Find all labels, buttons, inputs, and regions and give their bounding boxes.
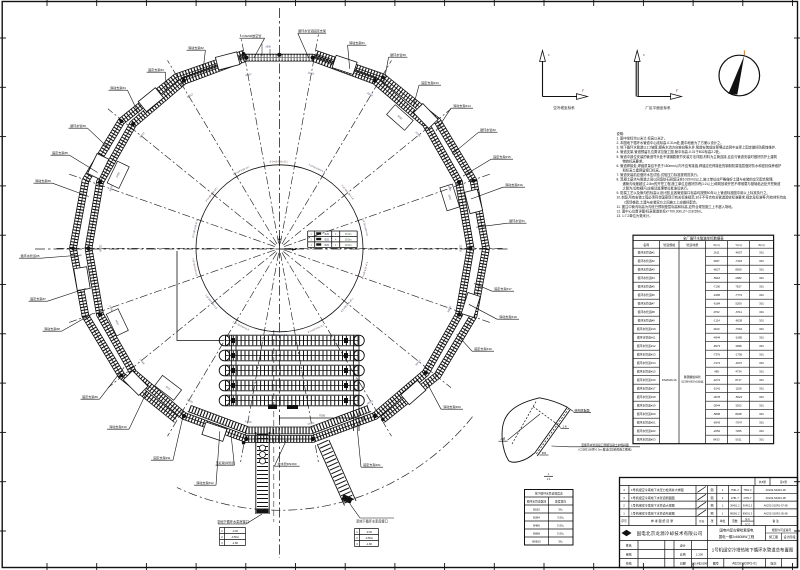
svg-text:施工图: 施工图 — [769, 534, 778, 539]
svg-text:301: 301 — [759, 285, 764, 289]
svg-text:循环水管道#22: 循环水管道#22 — [637, 429, 656, 433]
svg-text:2014年02月: 2014年02月 — [692, 562, 707, 566]
svg-text:7627: 7627 — [735, 285, 742, 289]
svg-text:301: 301 — [759, 251, 764, 255]
svg-text:和标高土建预留接口标高。: 和标高土建预留接口标高。 — [623, 167, 663, 172]
svg-text:国电一期2x660MW工程: 国电一期2x660MW工程 — [719, 534, 755, 539]
svg-text:共8张: 共8张 — [759, 480, 766, 484]
svg-text:7561.2: 7561.2 — [731, 488, 739, 492]
svg-text:结构底板面: 结构底板面 — [574, 408, 589, 413]
svg-text:1号机组空冷塔热地下循环水管道总布置图: 1号机组空冷塔热地下循环水管道总布置图 — [712, 547, 794, 554]
svg-text:2781.7: 2781.7 — [731, 496, 739, 500]
svg-text:2982: 2982 — [735, 276, 742, 280]
svg-text:管道规格: 管道规格 — [663, 242, 675, 247]
svg-text:DN200放空管: DN200放空管 — [243, 33, 262, 38]
svg-text:-4637: -4637 — [735, 361, 743, 365]
svg-text:9. 防腐工艺以及管沟的标高以设计图,且各管道接口标高均按照: 9. 防腐工艺以及管沟的标高以设计图,且各管道接口标高均按照50年以上管道标准图… — [617, 190, 770, 195]
svg-text:滑动支架#8: 滑动支架#8 — [44, 326, 60, 331]
svg-text:8559: 8559 — [735, 268, 742, 272]
svg-text:《现场核验,土建与安装双方之间施工上应做好配合。: 《现场核验,土建与安装双方之间施工上应做好配合。 — [623, 199, 700, 204]
svg-text:-7376: -7376 — [713, 353, 721, 357]
svg-text:A6232-S02R1-01: A6232-S02R1-01 — [732, 562, 757, 566]
svg-text:循环水管#1: 循环水管#1 — [509, 218, 525, 223]
svg-text:循环水管道#6: 循环水管道#6 — [638, 293, 656, 297]
svg-text:7. 管道安装前应做好水压试验,试验压力标准按规范执行。: 7. 管道安装前应做好水压试验,试验压力标准按规范执行。 — [617, 172, 701, 177]
svg-text:30451.2: 30451.2 — [743, 504, 753, 508]
svg-text:7561.2: 7561.2 — [744, 488, 752, 492]
svg-text:循环水管道#18: 循环水管道#18 — [637, 395, 656, 399]
svg-text:1. 图中坐标均以米计,标高以米计。: 1. 图中坐标均以米计,标高以米计。 — [617, 136, 668, 141]
svg-text:循环水管#9: 循环水管#9 — [390, 52, 406, 57]
svg-text:X(m): X(m) — [713, 243, 720, 247]
svg-text:7.1F 50.8 ΔH=1.8: 7.1F 50.8 ΔH=1.8 — [269, 160, 288, 163]
svg-text:滑动支架#16: 滑动支架#16 — [505, 182, 523, 187]
svg-text:审核: 审核 — [626, 552, 632, 557]
svg-text:-6028: -6028 — [735, 319, 743, 323]
svg-text:-4944: -4944 — [713, 336, 721, 340]
svg-text:301: 301 — [759, 310, 764, 314]
svg-text:7266: 7266 — [735, 429, 742, 433]
svg-text:滑动支架#18: 滑动支架#18 — [499, 314, 517, 319]
svg-text:301: 301 — [759, 293, 764, 297]
svg-text:4702: 4702 — [713, 310, 720, 314]
svg-text:-5916: -5916 — [713, 276, 721, 280]
svg-text:301: 301 — [759, 361, 764, 365]
svg-text:±0.0m: ±0.0m — [345, 233, 352, 236]
svg-text:循环水管道#9: 循环水管道#9 — [638, 319, 656, 323]
svg-text:301: 301 — [759, 429, 764, 433]
svg-text:固定支架#13: 固定支架#13 — [421, 80, 439, 85]
svg-text:滑动支架#1: 滑动支架#1 — [349, 40, 365, 45]
svg-text:-0.30: -0.30 — [366, 530, 372, 534]
svg-text:-7047: -7047 — [735, 421, 743, 425]
svg-text:301: 301 — [759, 404, 764, 408]
svg-text:Y(m): Y(m) — [735, 243, 742, 247]
svg-text:1号机组空冷塔地下水管道布置图: 1号机组空冷塔地下水管道布置图 — [631, 511, 675, 516]
svg-text:301: 301 — [759, 378, 764, 382]
svg-text:-6711: -6711 — [735, 310, 742, 314]
svg-text:循环水管道#21: 循环水管道#21 — [637, 421, 656, 425]
svg-text:8948: 8948 — [735, 412, 742, 416]
svg-text:1号机组空冷塔地下水压力检测井大样图: 1号机组空冷塔地下水压力检测井大样图 — [631, 487, 684, 492]
svg-text:301: 301 — [759, 268, 764, 272]
svg-text:1:200: 1:200 — [696, 553, 703, 557]
svg-text:循环水管道#10: 循环水管道#10 — [637, 327, 656, 331]
svg-text:固定支架#7: 固定支架#7 — [30, 296, 46, 301]
svg-text:循环水管道#20: 循环水管道#20 — [637, 412, 656, 416]
svg-text:3. 地下循环水管道以1:2坡度,顺各水流方向坡向集水井,管: 3. 地下循环水管道以1:2坡度,顺各水流方向坡向集水井,管道安装前应预埋过滤网… — [617, 145, 776, 150]
svg-text:5. 管道中部位安装的管道弯头处不锈钢膨胀节安装方法详图,材: 5. 管道中部位安装的管道弯头处不锈钢膨胀节安装方法详图,材料为主管连接,且应与… — [617, 154, 778, 159]
svg-text:循环水管道#1: 循环水管道#1 — [638, 251, 656, 255]
svg-text:循环水管道#16: 循环水管道#16 — [637, 378, 656, 382]
svg-text:至循环水管道接口预留混凝土护坦斜面: 至循环水管道接口预留混凝土护坦斜面 — [581, 443, 629, 447]
svg-text:固定支架#5: 固定支架#5 — [52, 150, 68, 155]
svg-text:A6232-S02R1-08: A6232-S02R1-08 — [766, 496, 787, 500]
svg-text:循环水管道#3: 循环水管道#3 — [638, 268, 656, 272]
svg-text:循环水管道#14: 循环水管道#14 — [637, 361, 656, 365]
svg-text:B4B6: B4B6 — [533, 523, 540, 527]
svg-text:301: 301 — [759, 438, 764, 442]
svg-text:-2252: -2252 — [713, 429, 721, 433]
svg-text:89091.2: 89091.2 — [730, 512, 740, 516]
svg-text:A6232-S02R1-05-08: A6232-S02R1-05-08 — [764, 512, 788, 516]
svg-text:489: 489 — [714, 370, 719, 374]
svg-text:Φ25: Φ25 — [324, 244, 329, 247]
svg-text:-1685: -1685 — [735, 336, 743, 340]
svg-text:循环水管道#5: 循环水管道#5 — [638, 285, 656, 289]
svg-text:循环水管道固定支架: 循环水管道固定支架 — [298, 28, 326, 33]
svg-text:7000: 7000 — [319, 414, 326, 418]
svg-text:至虹吸井管道: 至虹吸井管道 — [216, 460, 235, 465]
svg-text:备 注: 备 注 — [773, 519, 780, 523]
svg-text:循环水管道#5: 循环水管道#5 — [21, 253, 40, 258]
svg-text:循环水管道#15: 循环水管道#15 — [637, 370, 656, 374]
svg-text:B1B2: B1B2 — [533, 507, 540, 511]
svg-text:滑动支架#10: 滑动支架#10 — [109, 424, 127, 429]
svg-text:国电内蒙古察哈素煤电: 国电内蒙古察哈素煤电 — [720, 528, 755, 533]
svg-text:循环水管道#2: 循环水管道#2 — [638, 259, 656, 263]
svg-text:校核: 校核 — [626, 561, 632, 566]
svg-text:10.本图,所有安装工程必须符合国家现行有关标准规范,对于不: 10.本图,所有安装工程必须符合国家现行有关标准规范,对于不符合有关管道验收标准… — [617, 195, 787, 200]
svg-text:8. 混凝土基坑与管道之间以回填砂石回填压实1015/m3以: 8. 混凝土基坑与管道之间以回填砂石回填压实1015/m3以上,施工单位应严格做… — [617, 177, 774, 182]
svg-text:5.5‰: 5.5‰ — [557, 523, 564, 527]
svg-text:固定支架#19: 固定支架#19 — [474, 346, 492, 351]
svg-text:循环水管道#12: 循环水管道#12 — [637, 344, 656, 348]
svg-text:循环水管道#23: 循环水管道#23 — [637, 438, 656, 442]
svg-text:之管沟,如有疑问,应报请监理单位批准后执行。: 之管沟,如有疑问,应报请监理单位批准后执行。 — [623, 186, 691, 191]
svg-text:张: 张 — [711, 519, 714, 523]
svg-text:序号: 序号 — [621, 519, 627, 523]
svg-text:国电北京龙源冷却技术有限公司: 国电北京龙源冷却技术有限公司 — [637, 530, 703, 537]
svg-text:第1张: 第1张 — [780, 480, 787, 484]
svg-text:21500: 21500 — [459, 245, 462, 252]
svg-text:Q235B-8820x16防腐: Q235B-8820x16防腐 — [681, 380, 704, 384]
svg-text:1611: 1611 — [713, 251, 719, 255]
svg-text:1108: 1108 — [735, 387, 741, 391]
svg-text:管道材质: 管道材质 — [686, 242, 698, 247]
svg-text:地下循环水管道坡度表: 地下循环水管道坡度表 — [535, 492, 563, 496]
svg-text:301: 301 — [759, 276, 764, 280]
svg-text:-5141: -5141 — [713, 387, 721, 391]
svg-text:循环水管道#17: 循环水管道#17 — [637, 387, 656, 391]
svg-text:物的标高要求。: 物的标高要求。 — [623, 158, 646, 163]
svg-text:尺寸: 尺寸 — [745, 522, 750, 526]
svg-text:301: 301 — [759, 319, 764, 323]
svg-text:页数: 页数 — [732, 519, 738, 523]
svg-text:至地下循环水泵房接口: 至地下循环水泵房接口 — [356, 519, 388, 524]
svg-text:滑动支架#2: 滑动支架#2 — [188, 45, 204, 50]
svg-text:排水管DN300: 排水管DN300 — [278, 461, 297, 466]
svg-text:滑动支架#20: 滑动支架#20 — [443, 404, 461, 409]
svg-text:-6184: -6184 — [713, 302, 721, 306]
svg-text:301: 301 — [759, 336, 764, 340]
svg-text:B6B8: B6B8 — [533, 531, 540, 535]
svg-text:301: 301 — [759, 395, 764, 399]
svg-text:30451.2: 30451.2 — [730, 504, 740, 508]
svg-text:循环水管道#4: 循环水管道#4 — [638, 276, 656, 280]
svg-text:301: 301 — [759, 259, 764, 263]
svg-text:±0.0m: ±0.0m — [345, 244, 352, 247]
svg-text:A6232-S02R1-09: A6232-S02R1-09 — [766, 488, 787, 492]
svg-text:-6973: -6973 — [713, 344, 721, 348]
svg-text:5.5‰: 5.5‰ — [557, 531, 564, 535]
svg-text:DN2020x16: DN2020x16 — [662, 378, 677, 382]
svg-text:版次: 版次 — [770, 561, 776, 566]
svg-text:-5808: -5808 — [713, 412, 721, 416]
svg-text:固定支架#15: 固定支架#15 — [493, 154, 511, 159]
svg-text:2. 本图地下循环水管道中心线标高-0.31m处,图中地面为: 2. 本图地下循环水管道中心线标高-0.31m处,图中地面为了方便以设计之。 — [617, 140, 724, 145]
svg-text:至地下循环水泵房接口: 至地下循环水泵房接口 — [217, 519, 249, 524]
svg-text:-3078: -3078 — [713, 395, 721, 399]
svg-text:-1114: -1114 — [713, 319, 720, 323]
svg-text:-7100: -7100 — [713, 285, 721, 289]
svg-text:坡度坡向: 坡度坡向 — [555, 499, 566, 503]
svg-text:固定支架#17: 固定支架#17 — [494, 286, 512, 291]
svg-text:姓名: 姓名 — [626, 543, 632, 548]
svg-text:-6627: -6627 — [713, 268, 721, 272]
svg-text:滑动支架#12: 滑动支架#12 — [196, 480, 214, 485]
svg-text:11. 图注中管沟标高为沟底已预制垫层标高和标高,应符合规范: 11. 图注中管沟标高为沟底已预制垫层标高和标高,应符合规范施工上不超入场地。 — [617, 204, 735, 209]
svg-text:-7474: -7474 — [713, 361, 721, 365]
svg-text:-0.50m: -0.50m — [231, 535, 239, 539]
svg-text:-0.30: -0.30 — [232, 529, 238, 533]
svg-text:301: 301 — [759, 421, 764, 425]
svg-text:5011: 5011 — [735, 438, 741, 442]
svg-text:≥600: ≥600 — [266, 46, 272, 49]
svg-text:循环水管道#13: 循环水管道#13 — [637, 353, 656, 357]
svg-text:1:8: 1:8 — [562, 425, 567, 429]
svg-text:301: 301 — [759, 344, 764, 348]
svg-text:-5624: -5624 — [735, 395, 743, 399]
svg-text:1:2: 1:2 — [547, 477, 551, 481]
svg-text:301: 301 — [759, 302, 764, 306]
svg-text:固定支架#21: 固定支架#21 — [363, 462, 381, 467]
svg-text:全厂循环水管道坐标数据表: 全厂循环水管道坐标数据表 — [683, 235, 724, 240]
svg-text:12. 图中心位置详图/标高管道坐标x=700.30m,Z=: 12. 图中心位置详图/标高管道坐标x=700.30m,Z=-218.55m。 — [617, 208, 705, 213]
svg-text:滑动支架#14: 滑动支架#14 — [453, 103, 471, 108]
svg-text:3202: 3202 — [735, 404, 742, 408]
svg-text:日期: 日期 — [680, 561, 686, 566]
svg-text:6. 管道焊接处,焊缝质量应不低于180mm以内不应有接缝,: 6. 管道焊接处,焊缝质量应不低于180mm以内不应有接缝,焊缝应在焊接处的钢制… — [617, 163, 783, 168]
svg-text:说明:: 说明: — [617, 131, 625, 136]
svg-text:A机: A机 — [500, 436, 505, 441]
svg-text:设计: 设计 — [680, 543, 686, 548]
svg-text:301: 301 — [759, 370, 764, 374]
svg-text:13. 1:7.2单位为毫米计。: 13. 1:7.2单位为毫米计。 — [617, 213, 653, 218]
svg-text:张号: 张号 — [745, 517, 750, 521]
svg-text:-1.80: -1.80 — [366, 542, 372, 546]
svg-text:设计阶段: 设计阶段 — [783, 534, 795, 539]
svg-text:-4057: -4057 — [735, 251, 743, 255]
svg-text:循环水管道#7: 循环水管道#7 — [638, 302, 656, 306]
svg-text:-0.50m: -0.50m — [365, 536, 373, 540]
svg-text:-7772: -7772 — [735, 293, 743, 297]
svg-text:A6232-S02R1-07-08: A6232-S02R1-07-08 — [764, 504, 788, 508]
svg-text:1:8: 1:8 — [542, 451, 547, 455]
svg-text:固定支架#11: 固定支架#11 — [153, 455, 171, 460]
svg-text:-1965: -1965 — [713, 293, 721, 297]
svg-text:8423: 8423 — [713, 438, 720, 442]
svg-text:B2B4: B2B4 — [533, 515, 540, 519]
svg-text:碳钢螺旋焊管: 碳钢螺旋焊管 — [684, 375, 701, 379]
svg-text:4. 管道支架,管道预留孔位置详见施工图,管中标高-0.31: 4. 管道支架,管道预留孔位置详见施工图,管中标高-0.31于B32标高2.2处… — [617, 149, 723, 154]
svg-text:规划许可证编号: 规划许可证编号 — [772, 528, 792, 532]
svg-text:5209: 5209 — [735, 302, 742, 306]
svg-text:2781.7: 2781.7 — [744, 496, 752, 500]
svg-text:循环水管道区段: 循环水管道区段 — [527, 499, 547, 503]
svg-text:图号: 图号 — [713, 561, 719, 566]
svg-text:参 考 图 纸 目 录: 参 考 图 纸 目 录 — [651, 518, 673, 523]
svg-text:-7064: -7064 — [735, 327, 743, 331]
svg-text:循环水管道#19: 循环水管道#19 — [637, 404, 656, 408]
svg-text:-4274: -4274 — [713, 378, 721, 382]
svg-text:3‰: 3‰ — [558, 507, 563, 511]
svg-text:39.5m: 39.5m — [345, 238, 352, 241]
svg-text:单位: 单位 — [720, 519, 726, 523]
svg-text:B8B10: B8B10 — [532, 539, 541, 543]
svg-text:滑动支架#6: 滑动支架#6 — [35, 178, 51, 183]
svg-text:1号机组空冷塔地下水管道大样图: 1号机组空冷塔地下水管道大样图 — [631, 503, 675, 508]
svg-text:(C25砼100厚-0.5m,做法详见结构施工图纸): (C25砼100厚-0.5m,做法详见结构施工图纸) — [578, 448, 631, 452]
svg-text:301: 301 — [759, 387, 764, 391]
svg-text:21500: 21500 — [99, 245, 102, 252]
svg-text:厂区平面坐标系: 厂区平面坐标系 — [645, 105, 671, 110]
svg-text:循环水管#2: 循环水管#2 — [480, 127, 496, 132]
svg-text:循环水管道#8: 循环水管道#8 — [638, 310, 656, 314]
svg-text:-7418: -7418 — [735, 259, 743, 263]
svg-text:8717: 8717 — [735, 378, 742, 382]
svg-text:遇管沟深度超过-2.8m的开挖工程,施工单位应做好防坍(1:: 遇管沟深度超过-2.8m的开挖工程,施工单位应做好防坍(1:2以上)砌筑放坡开挖… — [623, 181, 782, 186]
svg-text:3.5‰: 3.5‰ — [557, 515, 564, 519]
svg-text:Z(m): Z(m) — [758, 243, 764, 247]
svg-text:3937: 3937 — [713, 259, 720, 263]
svg-text:4910: 4910 — [713, 327, 720, 331]
svg-text:空冷塔坐标系: 空冷塔坐标系 — [553, 105, 575, 110]
svg-text:-2844: -2844 — [713, 404, 721, 408]
svg-text:图: 图 — [711, 496, 714, 500]
svg-text:状态: 状态 — [699, 519, 705, 523]
svg-text:固定支架#9: 固定支架#9 — [82, 394, 98, 399]
svg-text:1号机组空冷塔地下水管道断面图: 1号机组空冷塔地下水管道断面图 — [631, 495, 675, 500]
svg-text:图: 图 — [711, 488, 714, 492]
svg-text:-1756: -1756 — [735, 353, 743, 357]
svg-text:301: 301 — [759, 412, 764, 416]
svg-text:-1.80: -1.80 — [232, 541, 238, 545]
svg-text:比例: 比例 — [680, 552, 686, 557]
svg-text:89091.2: 89091.2 — [743, 512, 753, 516]
svg-text:固定支架#3: 固定支架#3 — [148, 67, 164, 72]
svg-text:4734: 4734 — [735, 370, 742, 374]
svg-text:301: 301 — [759, 353, 764, 357]
svg-text:滑动支架#4: 滑动支架#4 — [110, 85, 126, 90]
svg-text:循环水管道#11: 循环水管道#11 — [637, 336, 656, 340]
svg-text:循环水管#6: 循环水管#6 — [70, 123, 86, 128]
svg-text:-6943: -6943 — [713, 421, 721, 425]
svg-text:3998: 3998 — [735, 344, 742, 348]
svg-text:3‰: 3‰ — [558, 539, 563, 543]
svg-text:名称: 名称 — [643, 242, 649, 247]
svg-text:Φ25: Φ25 — [324, 233, 329, 236]
svg-text:图: 图 — [711, 512, 714, 516]
svg-text:301: 301 — [759, 327, 764, 331]
svg-text:Φ25: Φ25 — [324, 238, 329, 241]
svg-text:图: 图 — [711, 504, 714, 508]
